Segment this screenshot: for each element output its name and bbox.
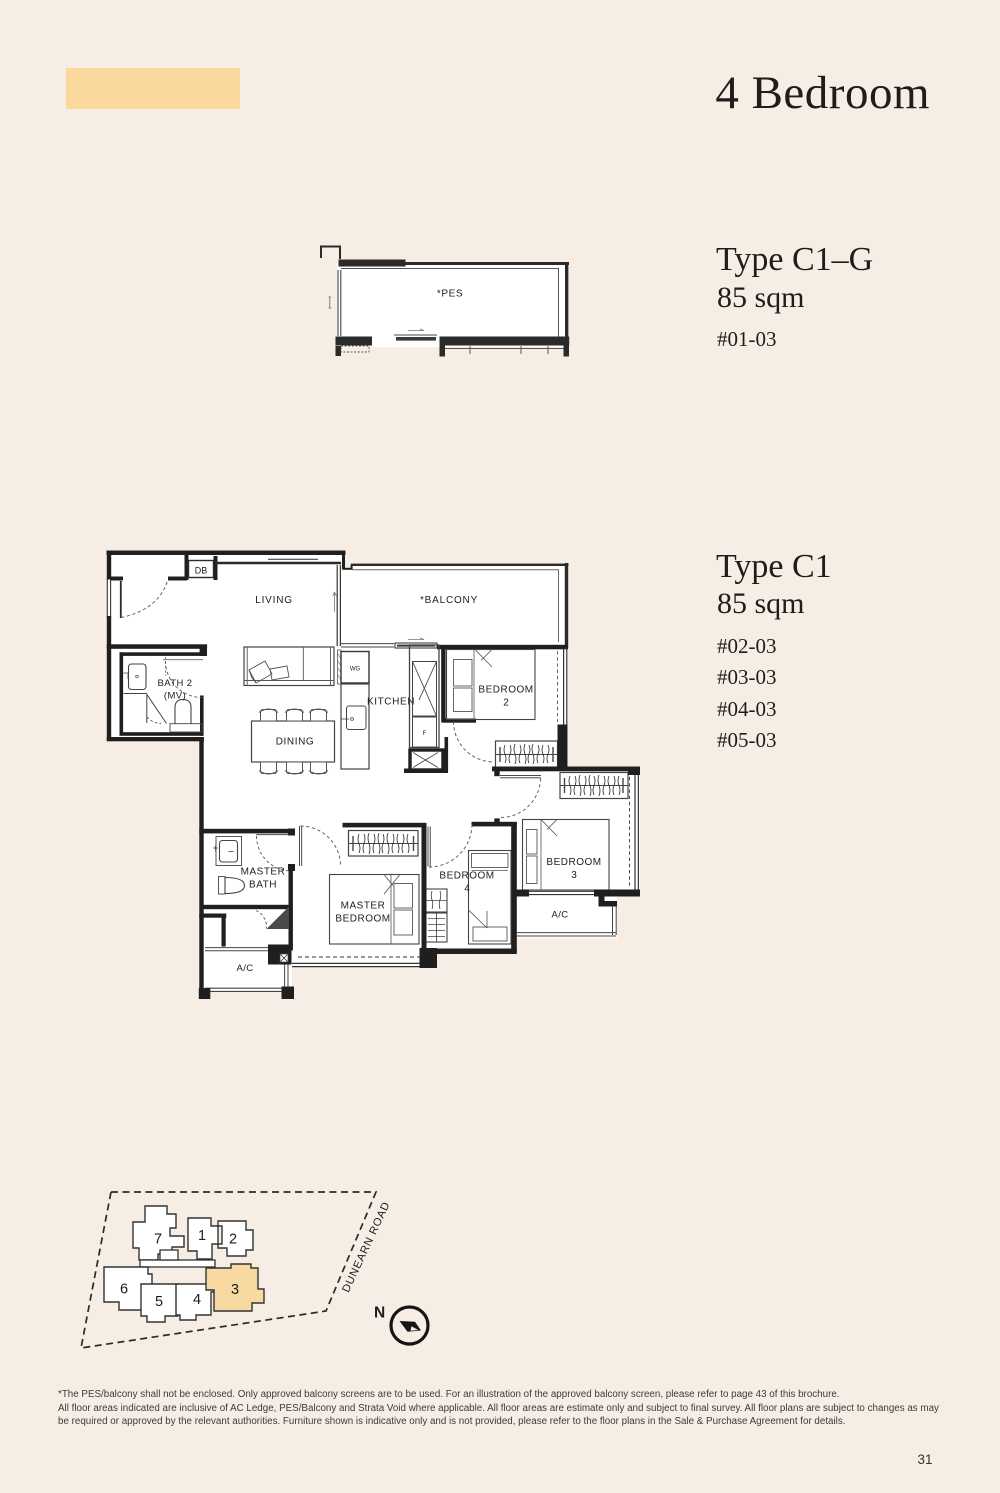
svg-text:2: 2 <box>503 698 509 709</box>
svg-text:4: 4 <box>193 1292 201 1308</box>
svg-text:6: 6 <box>120 1282 128 1298</box>
svg-text:7: 7 <box>154 1232 162 1248</box>
svg-text:A/C: A/C <box>236 963 253 974</box>
svg-text:MASTER: MASTER <box>341 901 386 912</box>
svg-text:MASTER: MASTER <box>241 867 286 878</box>
svg-text:*PES: *PES <box>437 289 463 300</box>
svg-text:WG: WG <box>350 667 361 673</box>
svg-text:LIVING: LIVING <box>255 595 293 606</box>
svg-text:BATH 2: BATH 2 <box>158 678 193 689</box>
svg-text:DB: DB <box>195 566 208 576</box>
svg-text:*BALCONY: *BALCONY <box>420 595 478 606</box>
svg-text:1: 1 <box>198 1228 206 1244</box>
svg-text:4: 4 <box>464 884 470 895</box>
svg-text:BEDROOM: BEDROOM <box>439 871 494 882</box>
svg-text:F: F <box>423 731 427 737</box>
svg-text:BATH: BATH <box>249 880 277 891</box>
svg-text:5: 5 <box>155 1294 163 1310</box>
svg-text:(MV): (MV) <box>164 691 186 702</box>
svg-text:KITCHEN: KITCHEN <box>367 697 415 708</box>
svg-text:BEDROOM: BEDROOM <box>335 914 390 925</box>
svg-text:BEDROOM: BEDROOM <box>478 685 533 696</box>
svg-text:3: 3 <box>231 1282 239 1298</box>
svg-text:A/C: A/C <box>551 910 568 921</box>
svg-text:DINING: DINING <box>276 737 315 748</box>
svg-text:BEDROOM: BEDROOM <box>546 857 601 868</box>
svg-text:2: 2 <box>229 1232 237 1248</box>
svg-text:3: 3 <box>571 870 577 881</box>
svg-text:N: N <box>374 1305 385 1322</box>
